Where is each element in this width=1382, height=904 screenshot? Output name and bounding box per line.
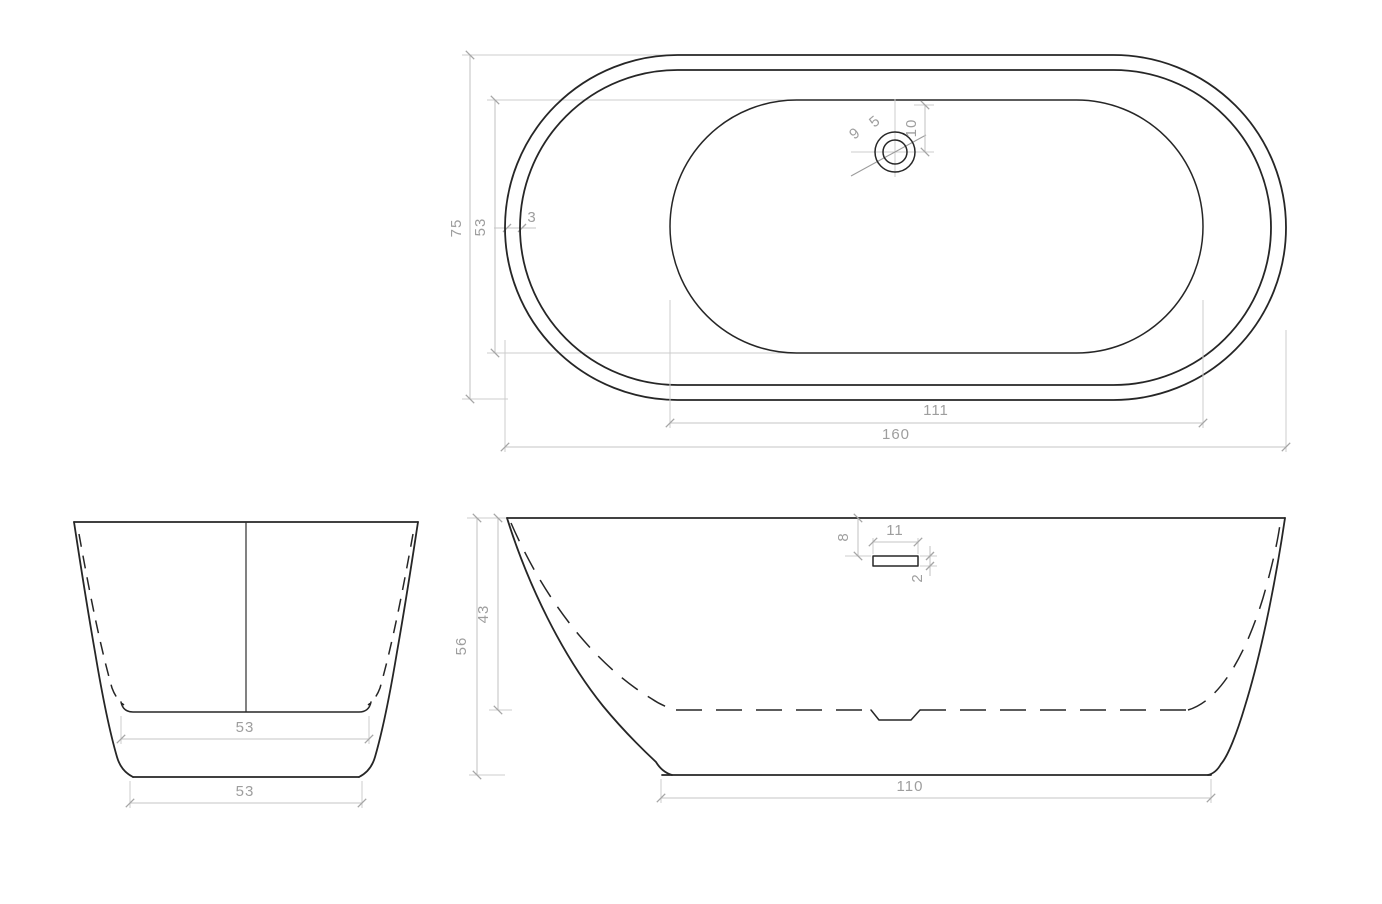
dim-text-base-length: 110 <box>897 778 924 795</box>
front-left-inner-wall-hidden <box>79 534 124 705</box>
dim-text-inner-depth: 43 <box>475 605 492 624</box>
dim-text-overflow-offset: 8 <box>835 532 852 541</box>
dim-text-overall-length: 160 <box>882 426 910 443</box>
dim-text-drain-inner-diameter: 5 <box>866 112 884 131</box>
side-drain-recess <box>871 710 920 720</box>
side-right-outer-wall <box>1208 518 1285 775</box>
overflow-slot <box>873 556 918 566</box>
dim-text-basin-width: 53 <box>472 218 489 237</box>
dim-text-overflow-height: 2 <box>909 573 926 582</box>
dim-text-drain-offset: 10 <box>903 119 920 138</box>
front-view: 53 53 <box>74 522 418 808</box>
front-right-inner-wall-hidden <box>368 534 413 705</box>
side-view: 8 11 2 56 43 110 <box>453 518 1285 803</box>
side-right-inner-wall-hidden <box>1188 524 1280 710</box>
tub-basin <box>670 100 1203 353</box>
dim-text-basin-length: 111 <box>923 402 949 419</box>
dim-text-overall-width: 75 <box>448 219 465 238</box>
top-view: 75 53 3 9 5 10 111 160 <box>448 55 1286 452</box>
side-left-inner-wall-hidden <box>511 523 676 710</box>
bathtub-drawing: 75 53 3 9 5 10 111 160 <box>0 0 1382 904</box>
dim-text-inner-floor-width: 53 <box>236 719 255 736</box>
dim-text-overall-height: 56 <box>453 637 470 656</box>
dim-text-rim-thickness: 3 <box>527 209 536 226</box>
dim-text-overflow-width: 11 <box>886 522 904 539</box>
dim-text-drain-outer-diameter: 9 <box>846 124 864 143</box>
drawing-canvas: 75 53 3 9 5 10 111 160 <box>0 0 1382 904</box>
dim-text-base-width: 53 <box>236 783 255 800</box>
